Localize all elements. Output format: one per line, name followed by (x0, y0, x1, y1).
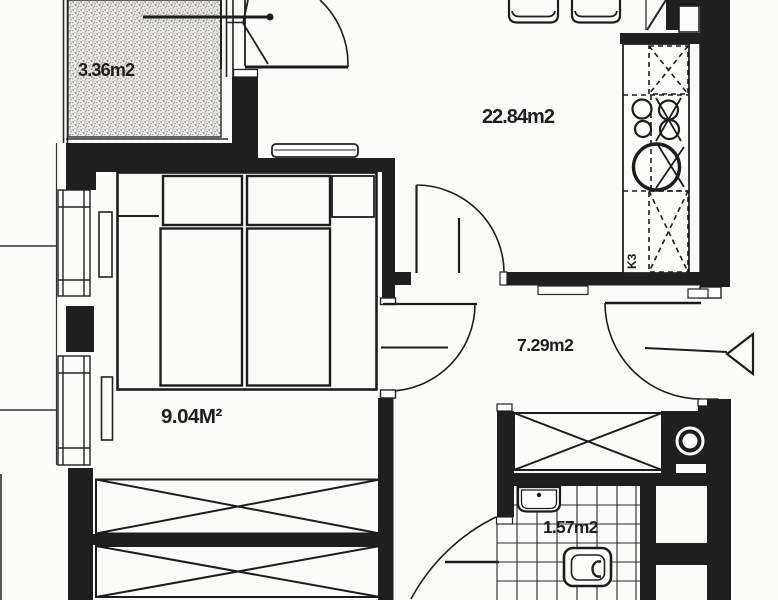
svg-text:1.57m2: 1.57m2 (543, 517, 599, 537)
svg-text:9.04M²: 9.04M² (161, 405, 222, 428)
svg-text:K3: K3 (625, 253, 639, 269)
svg-text:22.84m2: 22.84m2 (482, 106, 555, 128)
svg-text:3.36m2: 3.36m2 (78, 60, 135, 80)
svg-text:7.29m2: 7.29m2 (517, 335, 574, 355)
